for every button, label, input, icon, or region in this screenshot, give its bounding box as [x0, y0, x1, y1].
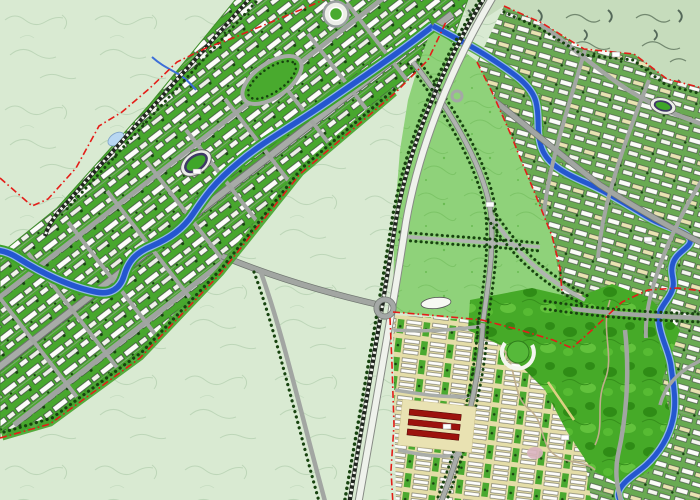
parcel-label-chip [561, 435, 569, 440]
map-canvas [0, 0, 700, 500]
parcel-label-chip [443, 424, 451, 429]
master-plan-map [0, 0, 700, 500]
hill-park-garden [527, 447, 543, 459]
parcel-label-chip [193, 169, 201, 174]
parcel-label-chip [612, 52, 620, 57]
parcel-label-chip [486, 202, 494, 207]
map-feature-layer [0, 0, 700, 500]
amphitheater-lawn [507, 341, 529, 363]
parcel-label-chip [644, 237, 652, 242]
circular-plaza-green [330, 8, 343, 21]
